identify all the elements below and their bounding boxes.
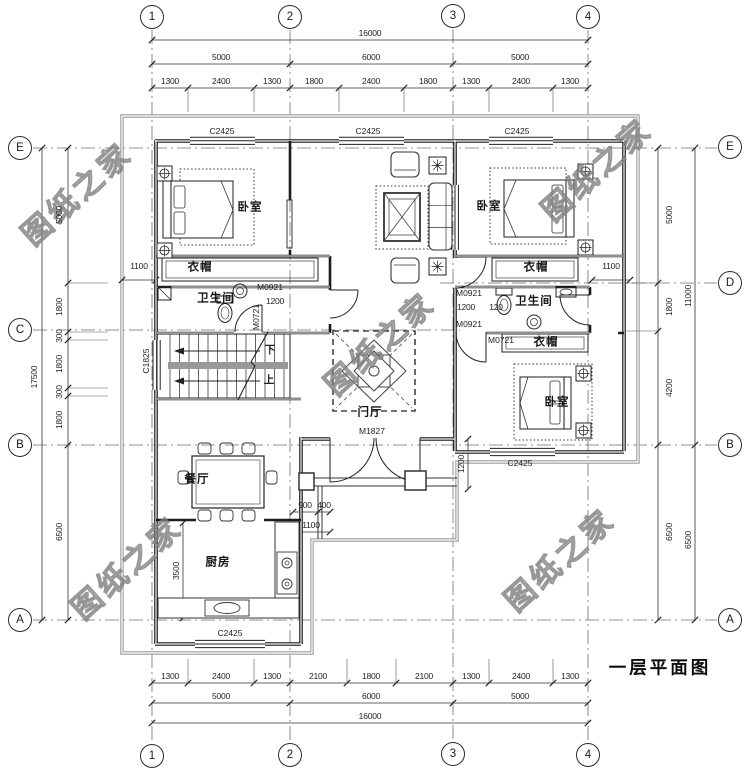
bathroom-fixtures: [158, 284, 576, 329]
floor-medallion: [333, 331, 415, 411]
kitchen-counter: [158, 522, 299, 618]
stairs: [157, 332, 290, 400]
bed: [157, 166, 254, 258]
toilet: [496, 288, 512, 315]
dining-table: [178, 443, 277, 521]
doors: [235, 200, 590, 482]
drawing-title: 一层平面图: [609, 655, 712, 680]
toilet: [217, 296, 233, 323]
bed: [514, 364, 592, 440]
floor-plan-sheet: 图纸之家图纸之家图纸之家图纸之家图纸之家 1600050006000500013…: [0, 0, 750, 769]
sofa-set: [376, 152, 452, 283]
bed: [490, 164, 593, 255]
porch-steps: [299, 471, 457, 539]
washbasin: [527, 315, 541, 329]
